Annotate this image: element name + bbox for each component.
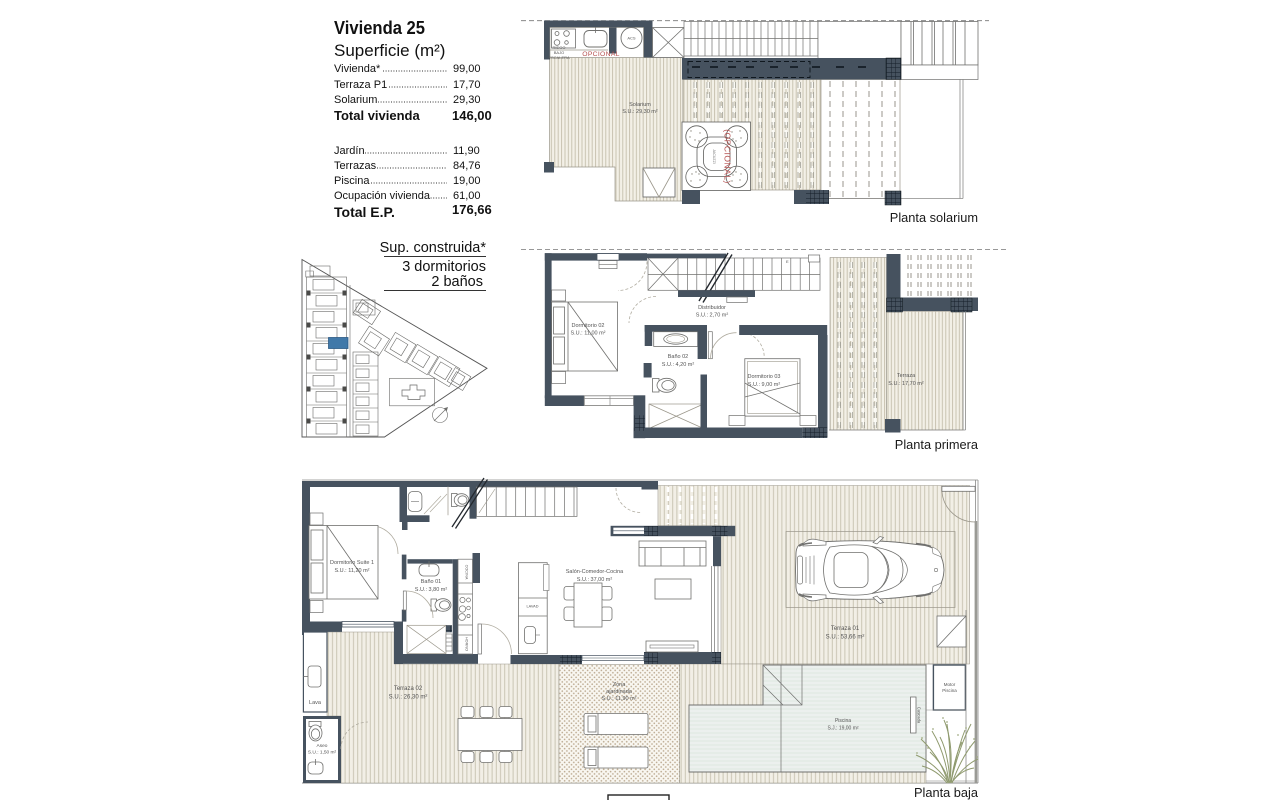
svg-text:S.U.: 9,00 m²: S.U.: 9,00 m² — [748, 382, 781, 388]
svg-text:Terraza 01: Terraza 01 — [831, 626, 860, 632]
svg-text:ESCALERA: ESCALERA — [548, 55, 570, 60]
svg-text:JACUZZI: JACUZZI — [712, 149, 716, 163]
svg-text:Jardín: Jardín — [334, 145, 365, 157]
svg-text:Dormitorio 03: Dormitorio 03 — [747, 374, 780, 380]
svg-text:S.U.: 26,30 m²: S.U.: 26,30 m² — [389, 695, 428, 701]
svg-text:Baño 01: Baño 01 — [421, 579, 442, 585]
svg-text:S.U.: 2,70 m²: S.U.: 2,70 m² — [696, 313, 729, 319]
svg-text:S.U.: 11,00 m²: S.U.: 11,00 m² — [570, 331, 605, 337]
svg-text:S.U.: 1,50 m²: S.U.: 1,50 m² — [308, 750, 337, 756]
svg-text:Vivienda 25: Vivienda 25 — [334, 17, 425, 38]
svg-text:Vivienda*: Vivienda* — [334, 63, 381, 75]
svg-text:Dormitorio Suite 1: Dormitorio Suite 1 — [330, 560, 374, 566]
svg-text:COCINA: COCINA — [465, 565, 469, 580]
svg-text:E: E — [786, 259, 789, 264]
svg-text:61,00: 61,00 — [453, 190, 481, 202]
svg-text:Motor: Motor — [944, 682, 956, 687]
svg-text:11,90: 11,90 — [453, 145, 480, 157]
svg-text:Distribuidor: Distribuidor — [698, 305, 726, 311]
svg-text:Salón-Comedor-Cocina: Salón-Comedor-Cocina — [566, 569, 624, 575]
svg-text:S.U.: 11,20 m²: S.U.: 11,20 m² — [334, 568, 369, 574]
svg-text:Dormitorio 02: Dormitorio 02 — [571, 323, 604, 329]
svg-text:S.U.: 11,90 m²: S.U.: 11,90 m² — [601, 696, 636, 702]
svg-text:Zona: Zona — [613, 682, 626, 688]
svg-text:(OPCIONAL): (OPCIONAL) — [723, 129, 733, 184]
svg-text:Piscina: Piscina — [942, 688, 957, 693]
svg-text:S.J.: 19,00 m²: S.J.: 19,00 m² — [827, 726, 858, 732]
svg-text:84,76: 84,76 — [453, 160, 481, 172]
svg-text:Terraza P1: Terraza P1 — [334, 79, 387, 91]
svg-text:3 dormitorios: 3 dormitorios — [402, 259, 486, 275]
svg-text:Planta baja: Planta baja — [914, 785, 979, 800]
svg-text:LAVAD: LAVAD — [527, 605, 539, 609]
svg-text:99,00: 99,00 — [453, 63, 481, 75]
svg-text:Solarium: Solarium — [629, 102, 651, 108]
svg-text:Planta solarium: Planta solarium — [890, 210, 978, 225]
svg-text:Terraza 02: Terraza 02 — [394, 686, 423, 692]
svg-text:Lava: Lava — [309, 700, 322, 706]
svg-text:HORNO: HORNO — [465, 637, 469, 651]
svg-text:OPCIONAL: OPCIONAL — [582, 51, 620, 58]
svg-text:2 baños: 2 baños — [431, 274, 483, 290]
svg-text:Sup. construida*: Sup. construida* — [380, 240, 487, 256]
svg-text:ajardinada: ajardinada — [606, 689, 633, 695]
svg-text:17,70: 17,70 — [453, 79, 481, 91]
svg-text:S.U.: 29,30 m²: S.U.: 29,30 m² — [622, 109, 658, 115]
svg-text:Ocupación vivienda: Ocupación vivienda — [334, 190, 431, 202]
svg-text:Baño 02: Baño 02 — [668, 354, 689, 360]
svg-text:Planta primera: Planta primera — [895, 437, 979, 452]
svg-text:Terraza: Terraza — [897, 373, 916, 379]
svg-text:Piscina: Piscina — [835, 718, 851, 724]
svg-text:S.U.: 37,00 m²: S.U.: 37,00 m² — [577, 577, 613, 583]
svg-text:146,00: 146,00 — [452, 108, 492, 123]
svg-text:S.U.: 3,80 m²: S.U.: 3,80 m² — [415, 587, 448, 593]
svg-text:176,66: 176,66 — [452, 202, 492, 217]
svg-text:S.U.: 53,66 m²: S.U.: 53,66 m² — [826, 635, 865, 641]
svg-text:Superficie (m²): Superficie (m²) — [334, 41, 445, 60]
svg-text:Cascada: Cascada — [917, 707, 922, 724]
svg-text:S.U.: 17,70 m²: S.U.: 17,70 m² — [888, 381, 924, 387]
svg-text:Total E.P.: Total E.P. — [334, 204, 395, 220]
svg-text:ACS: ACS — [627, 36, 636, 41]
svg-text:29,30: 29,30 — [453, 94, 481, 106]
svg-text:Total vivienda: Total vivienda — [334, 108, 420, 123]
svg-text:19,00: 19,00 — [453, 175, 481, 187]
svg-text:Aseo: Aseo — [317, 743, 328, 749]
svg-text:Terrazas: Terrazas — [334, 160, 377, 172]
svg-text:Solarium: Solarium — [334, 94, 377, 106]
svg-text:S.U.: 4,20 m²: S.U.: 4,20 m² — [662, 362, 695, 368]
svg-text:Piscina: Piscina — [334, 175, 370, 187]
